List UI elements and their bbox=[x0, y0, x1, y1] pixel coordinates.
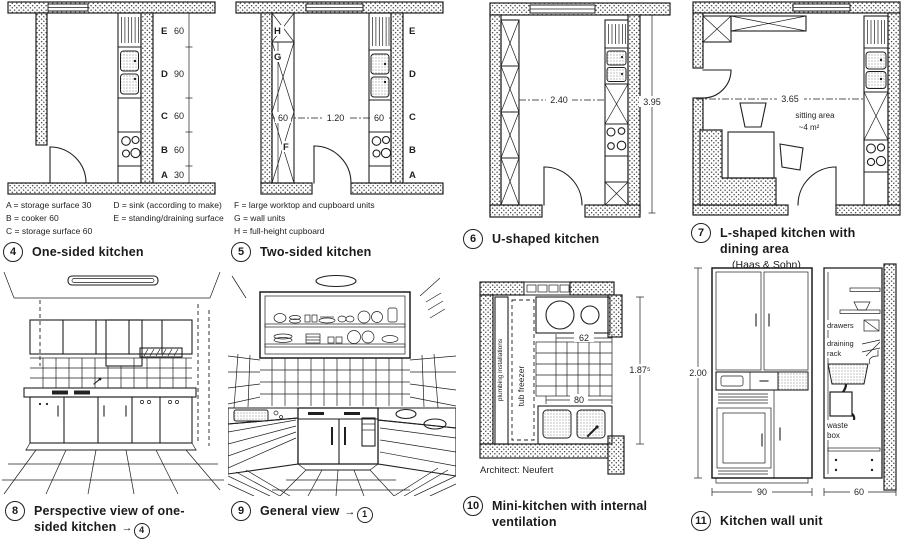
caption-9: 9 General view→1 bbox=[228, 501, 460, 523]
ceiling bbox=[4, 272, 220, 446]
left-units bbox=[501, 20, 519, 205]
dim-front-width: 90 bbox=[712, 486, 812, 497]
hob bbox=[536, 297, 610, 333]
worktop bbox=[24, 378, 196, 397]
zone-letter: C bbox=[409, 112, 416, 123]
draining-unit bbox=[373, 17, 390, 46]
open-shelf-unit bbox=[260, 292, 410, 358]
cooker-unit bbox=[607, 128, 626, 150]
right-counter bbox=[378, 408, 456, 476]
figure-number-badge: 5 bbox=[231, 242, 251, 262]
kitchen-wall-unit-drawing: 2.00 90 drawers draining r bbox=[688, 262, 906, 506]
dim-depth: 3.95 bbox=[643, 97, 661, 107]
front-elevation bbox=[712, 268, 812, 483]
figure-title: Perspective view of one-sided kitchen→4 bbox=[34, 501, 196, 539]
legend-item: D = sink (according to make) bbox=[113, 199, 226, 212]
kitchen-door bbox=[798, 167, 836, 205]
legend-item: B = cooker 60 bbox=[6, 212, 103, 225]
door bbox=[544, 167, 582, 205]
dimension-column: E 60 D 90 C 60 B 60 A 30 bbox=[161, 13, 193, 183]
zone-dim: 90 bbox=[174, 69, 184, 79]
l-shaped-kitchen-plan: 3.65 sitting area ~4 m² bbox=[688, 0, 910, 218]
caption-8: 8 Perspective view of one-sided kitchen→… bbox=[2, 501, 226, 539]
hob-plate bbox=[74, 391, 90, 395]
figure-number-badge: 10 bbox=[463, 496, 483, 516]
dim-height: 1.87⁵ bbox=[625, 297, 655, 444]
tub-freezer: tub freezer bbox=[512, 300, 534, 440]
panel-4-one-sided-kitchen: E 60 D 90 C 60 B 60 A 30 A = storage sur… bbox=[0, 0, 226, 262]
zone-dim: 60 bbox=[174, 26, 184, 36]
legend-item: G = wall units bbox=[234, 212, 460, 225]
dim-width: 2.40 bbox=[550, 95, 568, 105]
left-units: H G F bbox=[272, 13, 294, 183]
book-page: E 60 D 90 C 60 B 60 A 30 A = storage sur… bbox=[0, 0, 910, 540]
figure-number-badge: 4 bbox=[3, 242, 23, 262]
general-view-perspective bbox=[228, 268, 456, 496]
perspective-one-sided-kitchen bbox=[2, 268, 224, 496]
panel-10-mini-kitchen: plumbing installations tub freezer 62 bbox=[460, 266, 688, 530]
dimensions: 2.40 3.95 bbox=[519, 15, 665, 213]
caption-5: 5 Two-sided kitchen bbox=[228, 242, 460, 262]
waste-box-label: waste bbox=[826, 421, 848, 430]
sink-unit bbox=[607, 51, 626, 82]
walls bbox=[490, 3, 670, 217]
wall-letters: E D C B A bbox=[409, 26, 416, 181]
mini-kitchen-plan: plumbing installations tub freezer 62 bbox=[460, 266, 686, 480]
corner-bench bbox=[700, 130, 776, 205]
figure-number-badge: 6 bbox=[463, 229, 483, 249]
wall-cupboards bbox=[30, 320, 192, 366]
zone-letter: A bbox=[161, 170, 168, 181]
figure-title: General view→1 bbox=[260, 501, 373, 523]
tiled-walls bbox=[228, 354, 456, 408]
one-sided-kitchen-plan: E 60 D 90 C 60 B 60 A 30 bbox=[0, 0, 225, 196]
tiled-backsplash bbox=[30, 358, 192, 388]
panel-7-l-shaped-kitchen: 3.65 sitting area ~4 m² 7 L-shaped kitch… bbox=[688, 0, 910, 271]
draining-unit bbox=[122, 17, 139, 43]
door bbox=[50, 147, 86, 183]
dim-front-width-value: 90 bbox=[757, 487, 767, 497]
panel-11-kitchen-wall-unit: 2.00 90 drawers draining r bbox=[688, 262, 910, 531]
zone-dim: 60 bbox=[174, 145, 184, 155]
dim-side-width-value: 60 bbox=[854, 487, 864, 497]
legend-item: A = storage surface 30 bbox=[6, 199, 103, 212]
ceiling-light bbox=[68, 276, 158, 285]
zone-letter: D bbox=[161, 69, 168, 80]
reference-arrow: → bbox=[345, 506, 356, 518]
kitchen-units bbox=[118, 13, 141, 183]
dining-area bbox=[700, 103, 803, 205]
tub-freezer-label: tub freezer bbox=[516, 366, 526, 407]
plumbing-label: plumbing installations bbox=[497, 338, 504, 401]
draining-unit bbox=[868, 20, 885, 44]
extractor-hood bbox=[140, 348, 182, 357]
legend-item: F = large worktop and cupboard units bbox=[234, 199, 460, 212]
cooker-unit bbox=[122, 137, 140, 158]
dimension-line: 60 1.20 60 bbox=[272, 112, 391, 123]
dim-left: 60 bbox=[278, 113, 288, 123]
ceiling-light bbox=[316, 276, 356, 287]
panel-5-two-sided-kitchen: H G F 60 1.20 60 bbox=[228, 0, 460, 262]
waste-box-label: box bbox=[827, 431, 840, 440]
two-sided-kitchen-plan: H G F 60 1.20 60 bbox=[228, 0, 458, 196]
floor-tiles bbox=[228, 468, 456, 496]
caption-6: 6 U-shaped kitchen bbox=[460, 229, 688, 249]
figure-title: Mini-kitchen with internal ventilation bbox=[492, 496, 677, 530]
figure-title: Kitchen wall unit bbox=[720, 511, 823, 529]
legend-two-sided: F = large worktop and cupboard units G =… bbox=[234, 199, 460, 237]
reference-figure-badge: 1 bbox=[357, 507, 373, 523]
zone-dim: 30 bbox=[174, 170, 184, 180]
dim-height-value: 1.87⁵ bbox=[629, 365, 651, 375]
caption-11: 11 Kitchen wall unit bbox=[688, 511, 910, 531]
figure-title: L-shaped kitchen with dining area bbox=[720, 223, 872, 257]
legend-one-sided: A = storage surface 30 B = cooker 60 C =… bbox=[6, 199, 226, 237]
figure-title: U-shaped kitchen bbox=[492, 229, 599, 247]
legend-item: E = standing/draining surface bbox=[113, 212, 226, 225]
waste-box-glyph bbox=[830, 392, 852, 416]
u-shaped-kitchen-plan: 2.40 3.95 bbox=[460, 0, 688, 224]
figure-title: One-sided kitchen bbox=[32, 242, 144, 260]
figure-title: Two-sided kitchen bbox=[260, 242, 372, 260]
figure-number-badge: 11 bbox=[691, 511, 711, 531]
entry-door bbox=[703, 70, 731, 98]
sink-unit bbox=[866, 52, 886, 89]
dining-table bbox=[728, 132, 774, 178]
caption-10: 10 Mini-kitchen with internal ventilatio… bbox=[460, 496, 688, 530]
sink-unit bbox=[121, 51, 139, 94]
dim-mid: 1.20 bbox=[327, 113, 345, 123]
cooker-unit bbox=[372, 137, 390, 158]
chair bbox=[780, 144, 803, 170]
draining-rack-label: rack bbox=[827, 349, 841, 358]
figure-number-badge: 8 bbox=[5, 501, 25, 521]
dim-height: 2.00 bbox=[688, 268, 708, 478]
sink-basin bbox=[828, 364, 868, 384]
reference-arrow: → bbox=[121, 522, 132, 534]
hob-ring bbox=[396, 410, 416, 419]
floor-tiles bbox=[2, 450, 224, 494]
sink-unit bbox=[371, 54, 389, 97]
zone-letter: D bbox=[409, 69, 416, 80]
tall-cabinet bbox=[106, 320, 142, 366]
dim-top: 62 bbox=[579, 333, 589, 343]
sitting-area-label: sitting area bbox=[795, 111, 835, 120]
unit-letter-f: F bbox=[283, 142, 289, 153]
wall-cupboards bbox=[703, 16, 806, 42]
base-cabinets bbox=[26, 397, 196, 450]
drawers-label: drawers bbox=[827, 321, 854, 330]
architect-credit: Architect: Neufert bbox=[480, 465, 554, 476]
right-units bbox=[864, 16, 888, 205]
unit-letter-g: G bbox=[274, 52, 281, 63]
caption-4: 4 One-sided kitchen bbox=[0, 242, 226, 262]
legend-item: C = storage surface 60 bbox=[6, 225, 103, 238]
dimensions: 3.65 sitting area ~4 m² bbox=[696, 93, 864, 132]
panel-6-u-shaped-kitchen: 2.40 3.95 6 U-shaped kitchen bbox=[460, 0, 688, 249]
right-units bbox=[369, 13, 391, 183]
zone-letter: A bbox=[409, 170, 416, 181]
figure-number-badge: 7 bbox=[691, 223, 711, 243]
zone-letter: C bbox=[161, 111, 168, 122]
worktop-grid bbox=[536, 342, 612, 396]
figure-title-text: Perspective view of one-sided kitchen bbox=[34, 504, 185, 534]
chair bbox=[740, 103, 766, 127]
dim-62: 62 bbox=[556, 332, 612, 343]
sink-unit bbox=[538, 406, 612, 444]
section-view: drawers draining rack waste box bbox=[824, 264, 896, 490]
panel-8-perspective-view: 8 Perspective view of one-sided kitchen→… bbox=[2, 268, 226, 539]
left-counter bbox=[228, 408, 298, 474]
panel-9-general-view: 9 General view→1 bbox=[228, 268, 460, 523]
dim-bottom: 80 bbox=[574, 395, 584, 405]
door bbox=[314, 146, 351, 183]
cooker-unit bbox=[867, 144, 886, 166]
dim-height-value: 2.00 bbox=[689, 368, 707, 378]
dim-width: 3.65 bbox=[781, 94, 799, 104]
figure-number-badge: 9 bbox=[231, 501, 251, 521]
right-units bbox=[605, 20, 628, 205]
figure-title-text: General view bbox=[260, 504, 340, 518]
zone-dim: 60 bbox=[174, 111, 184, 121]
draining-unit bbox=[609, 24, 626, 44]
sink bbox=[234, 410, 268, 421]
zone-letter: E bbox=[161, 26, 167, 37]
plumbing-duct: plumbing installations bbox=[495, 297, 508, 444]
unit-letter-h: H bbox=[274, 26, 281, 37]
reference-figure-badge: 4 bbox=[134, 523, 150, 539]
zone-letter: B bbox=[409, 145, 416, 156]
hob-ring bbox=[424, 419, 446, 429]
zone-letter: B bbox=[161, 145, 168, 156]
base-cabinet bbox=[298, 408, 378, 470]
legend-item: H = full-height cupboard bbox=[234, 225, 460, 238]
hob-plate bbox=[52, 391, 68, 395]
zone-letter: E bbox=[409, 26, 415, 37]
draining-rack-label: draining bbox=[827, 339, 854, 348]
dim-right: 60 bbox=[374, 113, 384, 123]
sitting-area-value: ~4 m² bbox=[799, 123, 820, 132]
